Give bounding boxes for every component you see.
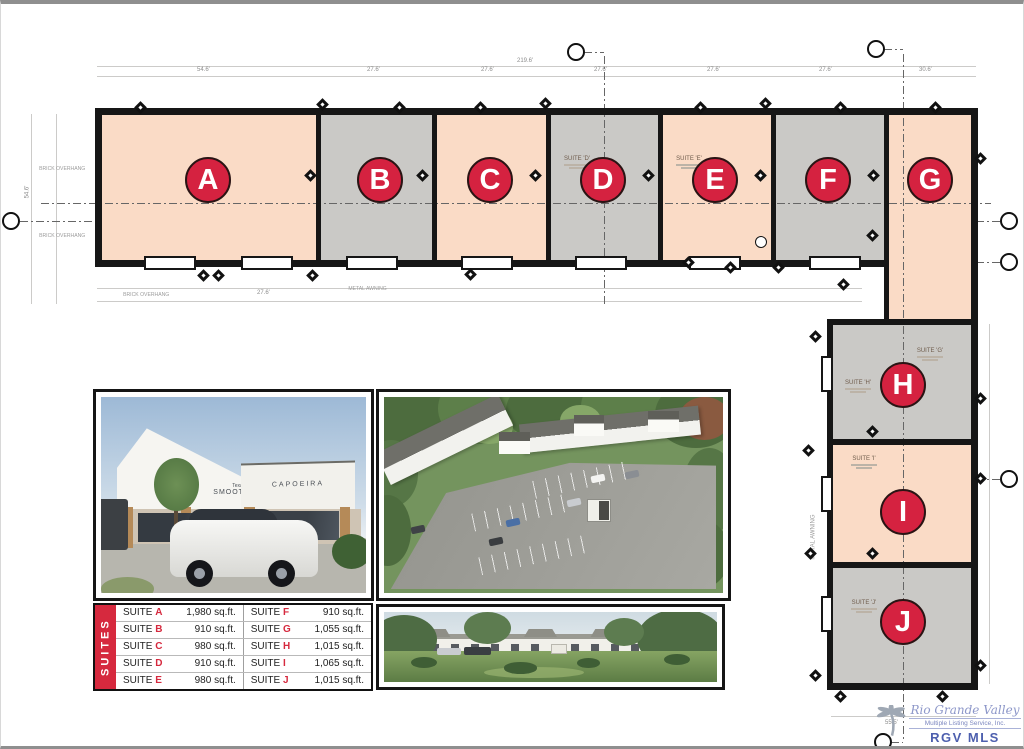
plan-annotation: BRICK OVERHANG bbox=[39, 166, 85, 171]
storefront-entry-recess bbox=[346, 256, 398, 270]
suite-area-cell: 980 sq.ft. bbox=[174, 672, 243, 689]
logo-subtitle: Multiple Listing Service, Inc. bbox=[909, 718, 1021, 729]
dimension-line bbox=[97, 301, 862, 302]
car bbox=[464, 647, 491, 655]
dimension-line bbox=[97, 66, 976, 67]
aerial-rendering-scene bbox=[384, 397, 723, 593]
diamond-marker-icon bbox=[306, 269, 319, 282]
dimension-line bbox=[56, 114, 57, 304]
diamond-marker-icon bbox=[212, 269, 225, 282]
suite-name-cell: SUITE I bbox=[244, 655, 302, 672]
storefront-entry-recess bbox=[144, 256, 196, 270]
plan-annotation: BRICK OVERHANG bbox=[123, 292, 169, 297]
storefront-entry-recess bbox=[809, 256, 861, 270]
suite-area-cell: 1,015 sq.ft. bbox=[302, 638, 371, 655]
wall-segment bbox=[432, 115, 437, 265]
suite-label-subtext bbox=[917, 356, 943, 358]
rgv-mls-logo: Rio Grande Valley Multiple Listing Servi… bbox=[875, 703, 1021, 745]
grid-centerline bbox=[20, 221, 95, 222]
grid-bubble-marker bbox=[867, 40, 885, 58]
street-rendering-photo bbox=[376, 604, 725, 690]
grid-bubble-marker bbox=[1000, 212, 1018, 230]
diamond-marker-icon bbox=[834, 690, 847, 703]
storefront-sign-capoeira: CAPOEIRA bbox=[253, 479, 344, 488]
suite-name-label: SUITE 'G' bbox=[907, 348, 953, 361]
bush bbox=[504, 662, 537, 673]
plan-annotation: BRICK OVERHANG bbox=[39, 233, 85, 238]
front-rendering-scene: Texas SMOOTHIES CAPOEIRA bbox=[101, 397, 366, 593]
suites-table-side-label: SUITES bbox=[95, 605, 116, 689]
suite-area-cell: 980 sq.ft. bbox=[174, 638, 243, 655]
suite-name-cell: SUITE A bbox=[116, 605, 174, 621]
logo-name: Rio Grande Valley bbox=[909, 703, 1021, 717]
suite-name-cell: SUITE G bbox=[244, 621, 302, 638]
suite-label-subtext bbox=[851, 464, 877, 466]
wall-segment bbox=[771, 115, 776, 265]
suite-row-H: SUITE H1,015 sq.ft. bbox=[244, 638, 371, 655]
suite-F-badge: F bbox=[805, 157, 851, 203]
dimension-label: 27.6' bbox=[707, 67, 720, 73]
suite-row-C: SUITE C980 sq.ft. bbox=[116, 638, 243, 655]
suite-G-area bbox=[889, 115, 971, 319]
suite-row-A: SUITE A1,980 sq.ft. bbox=[116, 605, 243, 621]
grid-bubble-marker bbox=[2, 212, 20, 230]
suite-area-cell: 1,015 sq.ft. bbox=[302, 672, 371, 689]
dimension-label: 27.6' bbox=[367, 67, 380, 73]
wall-segment bbox=[827, 683, 978, 690]
grid-centerline bbox=[584, 52, 604, 53]
diamond-marker-icon bbox=[809, 669, 822, 682]
suite-E-badge: E bbox=[692, 157, 738, 203]
right-storefront-parapet: CAPOEIRA bbox=[241, 460, 355, 514]
suite-label-subtext bbox=[845, 388, 871, 390]
suite-label-subtext bbox=[856, 467, 872, 469]
tree bbox=[604, 618, 644, 646]
building-gable bbox=[648, 411, 679, 433]
suite-I-badge: I bbox=[880, 489, 926, 535]
wall-segment bbox=[658, 115, 663, 265]
wall-segment bbox=[833, 439, 971, 445]
roof-gable bbox=[524, 629, 557, 637]
suite-B-badge: B bbox=[357, 157, 403, 203]
suite-row-E: SUITE E980 sq.ft. bbox=[116, 672, 243, 689]
tree bbox=[464, 612, 511, 644]
parked-van bbox=[101, 499, 128, 550]
wall-segment bbox=[884, 260, 889, 319]
grid-bubble-marker bbox=[755, 236, 767, 248]
suite-area-cell: 910 sq.ft. bbox=[302, 605, 371, 621]
suite-label-subtext bbox=[856, 611, 872, 613]
suite-area-cell: 1,065 sq.ft. bbox=[302, 655, 371, 672]
wall-segment bbox=[884, 115, 889, 265]
suite-row-F: SUITE F910 sq.ft. bbox=[244, 605, 371, 621]
storefront-entry-recess bbox=[821, 476, 833, 512]
palm-tree-icon bbox=[875, 705, 909, 739]
suite-name-label: SUITE 'I' bbox=[841, 456, 887, 469]
suite-area-cell: 910 sq.ft. bbox=[174, 621, 243, 638]
wall-segment bbox=[546, 115, 551, 265]
dimension-line bbox=[989, 324, 990, 684]
suite-name-cell: SUITE H bbox=[244, 638, 302, 655]
storefront-entry-recess bbox=[821, 356, 833, 392]
suite-name-cell: SUITE F bbox=[244, 605, 302, 621]
suite-D-badge: D bbox=[580, 157, 626, 203]
grass-strip bbox=[101, 577, 154, 593]
diamond-marker-icon bbox=[936, 690, 949, 703]
wall-segment bbox=[95, 108, 102, 267]
grid-bubble-marker bbox=[1000, 253, 1018, 271]
car bbox=[437, 648, 460, 654]
diamond-marker-icon bbox=[802, 444, 815, 457]
suites-table: SUITES SUITE A1,980 sq.ft.SUITE B910 sq.… bbox=[93, 603, 373, 691]
suite-row-D: SUITE D910 sq.ft. bbox=[116, 655, 243, 672]
suite-name-cell: SUITE C bbox=[116, 638, 174, 655]
suite-name-label: SUITE 'H' bbox=[835, 380, 881, 393]
suite-row-B: SUITE B910 sq.ft. bbox=[116, 621, 243, 638]
suite-area-cell: 1,980 sq.ft. bbox=[174, 605, 243, 621]
storefront-entry-recess bbox=[821, 596, 833, 632]
rgv-mls-logo-text: Rio Grande Valley Multiple Listing Servi… bbox=[909, 703, 1021, 745]
logo-abbr: RGV MLS bbox=[909, 730, 1021, 745]
suite-name-label: SUITE 'J' bbox=[841, 600, 887, 613]
white-suv bbox=[170, 509, 318, 582]
suite-label-subtext bbox=[922, 359, 938, 361]
storefront-entry-recess bbox=[241, 256, 293, 270]
front-rendering-photo: Texas SMOOTHIES CAPOEIRA bbox=[93, 389, 374, 601]
grid-bubble-marker bbox=[567, 43, 585, 61]
building-gable bbox=[499, 432, 530, 454]
suite-name-cell: SUITE D bbox=[116, 655, 174, 672]
dimension-label: 54.6' bbox=[24, 186, 30, 199]
grid-centerline bbox=[41, 203, 991, 204]
diamond-marker-icon bbox=[809, 330, 822, 343]
storefront-entry-recess bbox=[575, 256, 627, 270]
dimension-label: 27.6' bbox=[481, 67, 494, 73]
wall-segment bbox=[833, 562, 971, 568]
grid-centerline bbox=[884, 49, 903, 50]
diamond-marker-icon bbox=[197, 269, 210, 282]
suite-C-badge: C bbox=[467, 157, 513, 203]
wall-segment bbox=[316, 115, 321, 265]
suites-table-left: SUITE A1,980 sq.ft.SUITE B910 sq.ft.SUIT… bbox=[116, 605, 244, 689]
suites-table-right: SUITE F910 sq.ft.SUITE G1,055 sq.ft.SUIT… bbox=[244, 605, 371, 689]
listing-flyer-sheet: ABCDEFGHIJSUITE 'D'SUITE 'E'SUITE 'G'SUI… bbox=[0, 0, 1024, 749]
wall-segment bbox=[95, 108, 978, 115]
suite-A-badge: A bbox=[185, 157, 231, 203]
suite-row-J: SUITE J1,015 sq.ft. bbox=[244, 672, 371, 689]
dimension-line bbox=[97, 288, 862, 289]
monument-sign bbox=[551, 644, 568, 654]
suite-area-cell: 1,055 sq.ft. bbox=[302, 621, 371, 638]
suite-name-cell: SUITE E bbox=[116, 672, 174, 689]
dimension-label: 54.6' bbox=[197, 67, 210, 73]
street-rendering-scene bbox=[384, 612, 717, 682]
dimension-label: 27.6' bbox=[594, 67, 607, 73]
suite-row-G: SUITE G1,055 sq.ft. bbox=[244, 621, 371, 638]
suite-row-I: SUITE I1,065 sq.ft. bbox=[244, 655, 371, 672]
suite-J-badge: J bbox=[880, 599, 926, 645]
suite-H-badge: H bbox=[880, 362, 926, 408]
suite-area-cell: 910 sq.ft. bbox=[174, 655, 243, 672]
suv-wheel bbox=[268, 560, 295, 587]
aerial-rendering-photo bbox=[376, 389, 731, 601]
suite-label-subtext bbox=[851, 608, 877, 610]
dimension-line bbox=[97, 76, 976, 77]
bush bbox=[411, 657, 438, 668]
dimension-label: 27.6' bbox=[257, 290, 270, 296]
suite-G-badge: G bbox=[907, 157, 953, 203]
grid-bubble-marker bbox=[1000, 470, 1018, 488]
dimension-label: 219.6' bbox=[517, 58, 533, 64]
dimension-label: 30.6' bbox=[919, 67, 932, 73]
suite-name-cell: SUITE J bbox=[244, 672, 302, 689]
wall-segment bbox=[827, 319, 976, 325]
dimension-label: 27.6' bbox=[819, 67, 832, 73]
suite-name-cell: SUITE B bbox=[116, 621, 174, 638]
plan-annotation: METAL AWNING bbox=[348, 286, 386, 291]
suites-table-columns: SUITE A1,980 sq.ft.SUITE B910 sq.ft.SUIT… bbox=[116, 605, 371, 689]
suite-label-subtext bbox=[850, 391, 866, 393]
tree bbox=[154, 458, 199, 511]
diamond-marker-icon bbox=[464, 268, 477, 281]
building-gable bbox=[574, 415, 605, 437]
dumpster-enclosure bbox=[587, 499, 611, 523]
dimension-line bbox=[31, 114, 32, 304]
